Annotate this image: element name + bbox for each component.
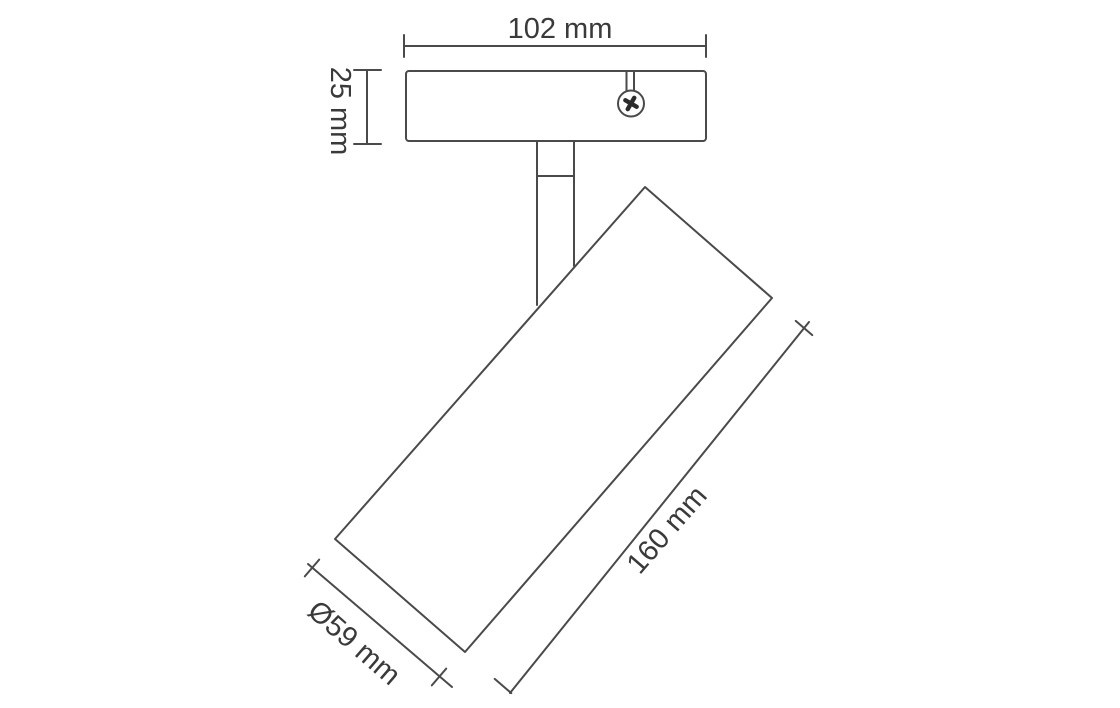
dim-plate-height: [354, 70, 381, 144]
mounting-plate: [406, 71, 706, 141]
spotlight-body: [335, 187, 772, 652]
screw-icon: [618, 91, 644, 117]
label-plate-height: 25 mm: [324, 67, 356, 156]
label-body-length: 160 mm: [621, 480, 714, 580]
label-plate-width: 102 mm: [508, 13, 613, 45]
drawing-canvas: 102 mm 25 mm 160 mm Ø59 mm: [0, 0, 1120, 708]
label-body-diameter: Ø59 mm: [301, 595, 406, 692]
product-outline: [335, 71, 772, 652]
spotlight-dimension-drawing: 102 mm 25 mm 160 mm Ø59 mm: [0, 0, 1120, 708]
